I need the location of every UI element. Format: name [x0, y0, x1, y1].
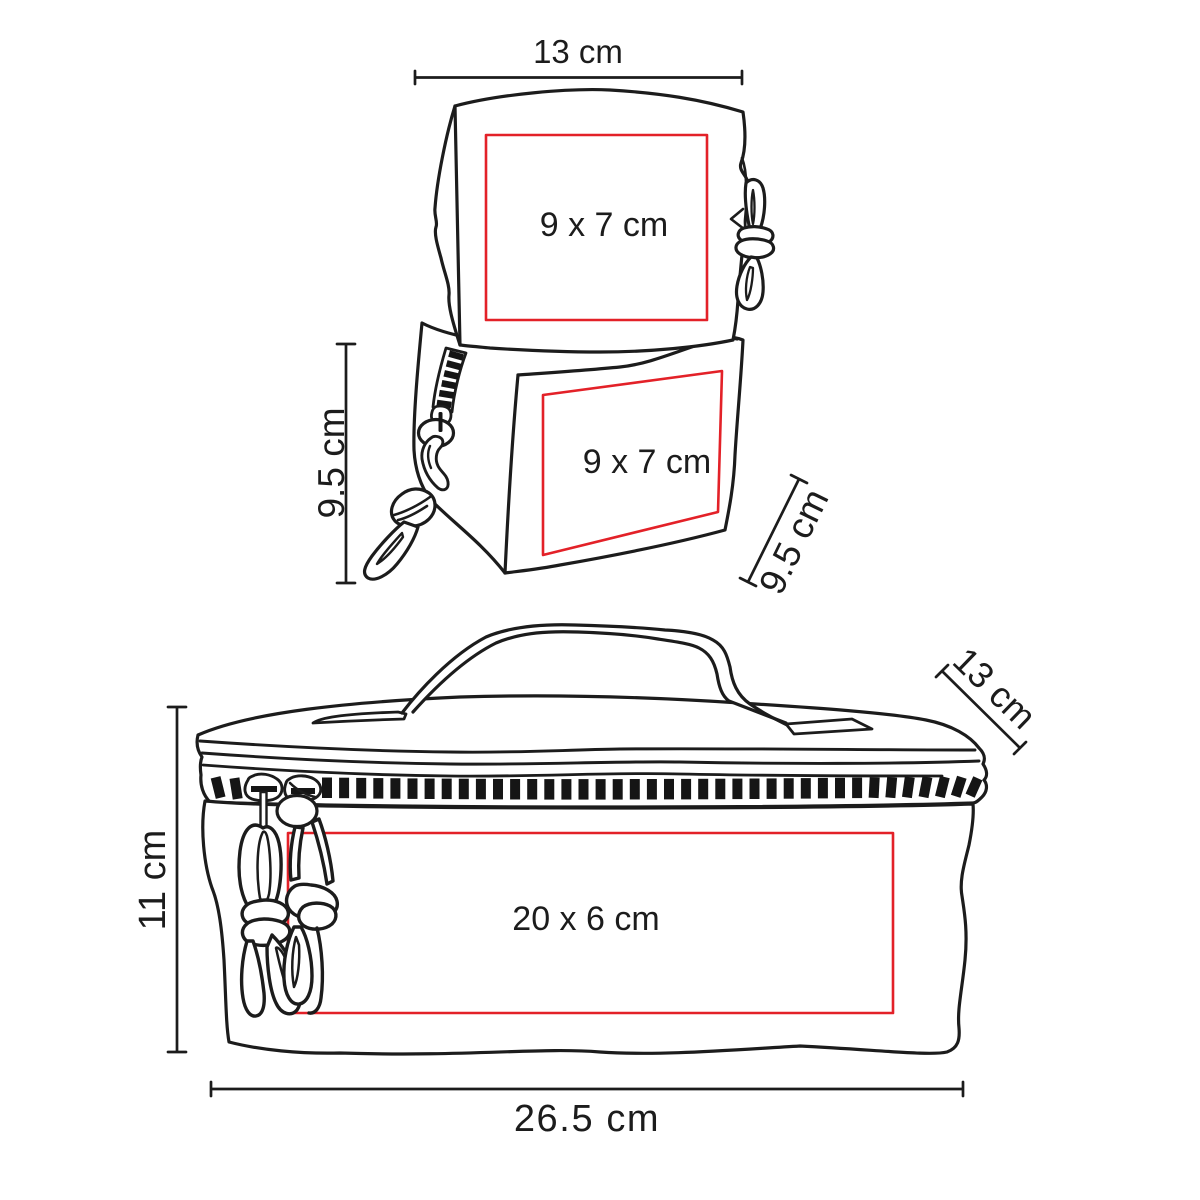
svg-text:9 x 7 cm: 9 x 7 cm — [540, 206, 668, 244]
svg-text:13 cm: 13 cm — [533, 33, 623, 70]
svg-text:20 x 6 cm: 20 x 6 cm — [512, 900, 659, 938]
svg-text:11 cm: 11 cm — [132, 830, 174, 931]
svg-text:9 x 7 cm: 9 x 7 cm — [583, 443, 711, 481]
svg-text:9.5 cm: 9.5 cm — [311, 407, 352, 518]
svg-text:26.5 cm: 26.5 cm — [514, 1098, 660, 1140]
